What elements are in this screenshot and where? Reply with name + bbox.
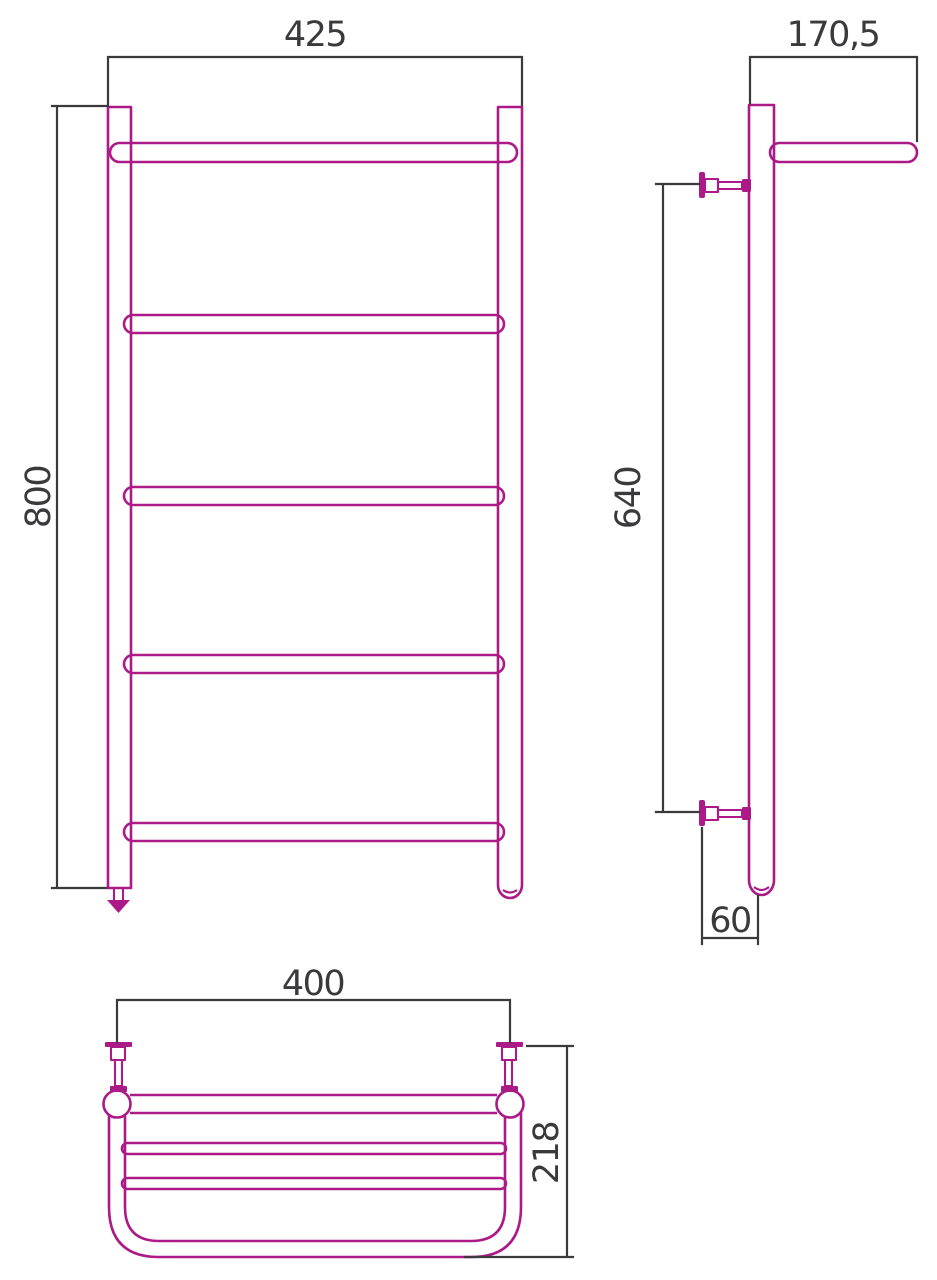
- dim-label-top-width: 400: [282, 964, 344, 1004]
- bracket-body: [705, 179, 718, 192]
- dim-label-side-depth: 170,5: [787, 15, 880, 55]
- side-post: [749, 105, 774, 895]
- side-view: [699, 105, 917, 895]
- dim-label-front-height: 800: [19, 466, 59, 528]
- front-right-post-cap-line: [503, 890, 517, 893]
- bracket-stem: [505, 1060, 512, 1086]
- dimensions: 425 170,5 800 640 60 400 218: [19, 15, 917, 1257]
- top-outer-u-tube: [109, 1112, 521, 1257]
- dim-label-bracket-span: 640: [609, 467, 649, 529]
- bracket-stem: [115, 1060, 122, 1086]
- bracket-collar: [110, 1086, 127, 1092]
- dim-line-front-width: [108, 57, 522, 105]
- side-post-cap-line: [754, 887, 769, 890]
- front-left-post: [108, 107, 131, 888]
- bracket-neck: [718, 810, 742, 817]
- front-rung-1: [110, 143, 517, 162]
- bracket-post-connector: [742, 807, 751, 820]
- bracket-post-connector: [742, 179, 751, 192]
- top-right-bracket: [496, 1042, 523, 1092]
- front-rung-2: [124, 315, 504, 333]
- bracket-body: [502, 1047, 516, 1060]
- cable-outlet-stem: [114, 888, 123, 900]
- front-view: [107, 107, 522, 913]
- dim-label-top-depth: 218: [527, 1122, 567, 1184]
- towel-rail-drawing: 425 170,5 800 640 60 400 218: [0, 0, 937, 1280]
- dim-line-bracket-span: [656, 184, 699, 812]
- side-lower-bracket: [699, 800, 751, 826]
- side-shelf-arm: [770, 143, 917, 162]
- front-rung-4: [124, 655, 504, 673]
- top-shelf-front-bar: [130, 1095, 497, 1113]
- top-rail-bar-2: [122, 1178, 506, 1189]
- dim-label-front-width: 425: [284, 15, 346, 55]
- top-inner-u-tube: [125, 1112, 505, 1241]
- dim-line-front-height: [52, 106, 107, 888]
- side-upper-bracket: [699, 172, 751, 198]
- front-rung-3: [124, 487, 504, 505]
- bracket-body: [705, 807, 718, 820]
- top-right-post-section: [497, 1091, 524, 1118]
- bracket-body: [111, 1047, 125, 1060]
- top-left-bracket: [105, 1042, 132, 1092]
- top-left-post-section: [104, 1091, 131, 1118]
- front-rung-5: [124, 823, 504, 841]
- top-view: [104, 1042, 524, 1257]
- dim-line-top-width: [117, 1000, 510, 1042]
- cable-outlet-arrow-icon: [107, 900, 130, 913]
- dim-label-wall-offset: 60: [709, 901, 751, 941]
- technical-drawing-page: 425 170,5 800 640 60 400 218: [0, 0, 937, 1280]
- bracket-collar: [501, 1086, 518, 1092]
- bracket-neck: [718, 182, 742, 189]
- top-rail-bar-1: [122, 1143, 506, 1154]
